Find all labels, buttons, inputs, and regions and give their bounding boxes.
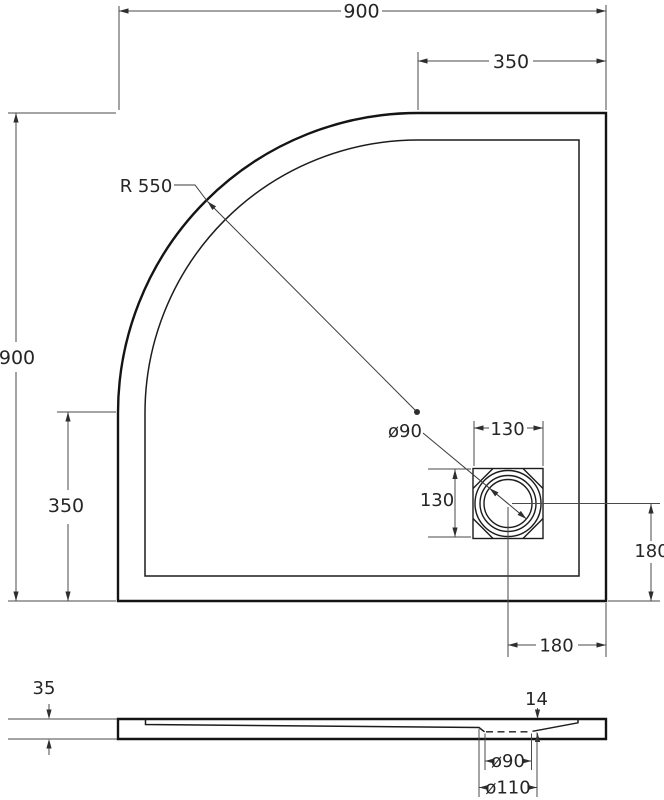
dim-overall-height: 900 bbox=[0, 113, 116, 601]
profile-outline bbox=[118, 719, 606, 739]
arrowhead bbox=[535, 710, 540, 720]
profile-floor-right bbox=[533, 719, 579, 731]
radius-center-dot bbox=[414, 409, 420, 415]
drain-chamfer-bottom-left bbox=[473, 519, 493, 539]
arrowhead bbox=[597, 8, 607, 13]
arrowhead bbox=[13, 113, 18, 123]
radius-line bbox=[208, 202, 418, 413]
radius-label: R 550 bbox=[120, 176, 173, 197]
dim-drain-box-height: 130 bbox=[420, 469, 471, 537]
arrowhead bbox=[119, 8, 129, 13]
arrowhead bbox=[46, 739, 51, 749]
dim-label-overall-width: 900 bbox=[343, 1, 379, 23]
dim-label-drain-hole: ø90 bbox=[491, 751, 525, 772]
arrowhead bbox=[534, 425, 544, 430]
drain-chamfer-bottom-right bbox=[523, 519, 543, 539]
dim-overall-width: 900 bbox=[119, 1, 606, 111]
dim-label-drain-box-width: 130 bbox=[490, 419, 524, 440]
arrowhead bbox=[452, 528, 457, 538]
top-view: R 550 ø90 900 350 bbox=[0, 1, 664, 658]
dim-label-top-offset: 350 bbox=[493, 51, 529, 73]
radius-callout: R 550 bbox=[120, 176, 420, 415]
arrowhead bbox=[13, 592, 18, 602]
dim-label-drain-offset-bottom: 180 bbox=[539, 636, 573, 657]
drain-diameter-label: ø90 bbox=[388, 421, 422, 442]
radius-label-leader bbox=[174, 185, 208, 202]
dim-drain-offset-bottom: 180 bbox=[508, 507, 606, 657]
profile-floor-left bbox=[146, 719, 485, 732]
drawing-canvas: R 550 ø90 900 350 bbox=[0, 0, 664, 800]
shower-tray-technical-drawing: R 550 ø90 900 350 bbox=[0, 0, 664, 800]
drain-chamfer-top-right bbox=[523, 469, 543, 489]
dim-drain-box-width: 130 bbox=[474, 419, 543, 466]
dim-top-offset: 350 bbox=[418, 51, 606, 110]
arrowhead bbox=[597, 642, 607, 647]
arrowhead bbox=[508, 642, 518, 647]
arrowhead bbox=[597, 58, 607, 63]
arrowhead bbox=[65, 592, 70, 602]
arrowhead bbox=[648, 592, 653, 602]
arrowhead bbox=[65, 412, 70, 422]
dim-label-side-offset: 350 bbox=[48, 495, 84, 517]
arrowhead bbox=[418, 58, 428, 63]
dim-label-drain-offset-right: 180 bbox=[634, 541, 664, 562]
dim-side-offset: 350 bbox=[48, 412, 116, 601]
arrowhead bbox=[648, 504, 653, 514]
dim-tray-height: 35 bbox=[8, 678, 117, 755]
dim-label-drain-recess: 14 bbox=[525, 689, 548, 710]
section-view: 35 14 ø90 ø110 bbox=[8, 678, 606, 799]
arrowhead bbox=[452, 470, 457, 480]
drain-chamfer-top-left bbox=[473, 469, 493, 489]
dim-label-tray-height: 35 bbox=[33, 678, 56, 699]
dim-label-drain-opening: ø110 bbox=[485, 778, 530, 799]
dim-label-overall-height: 900 bbox=[0, 347, 35, 369]
arrowhead bbox=[46, 710, 51, 720]
dim-label-drain-box-height: 130 bbox=[420, 490, 454, 511]
arrowhead bbox=[474, 425, 484, 430]
dim-drain-offset-right: 180 bbox=[512, 504, 664, 602]
